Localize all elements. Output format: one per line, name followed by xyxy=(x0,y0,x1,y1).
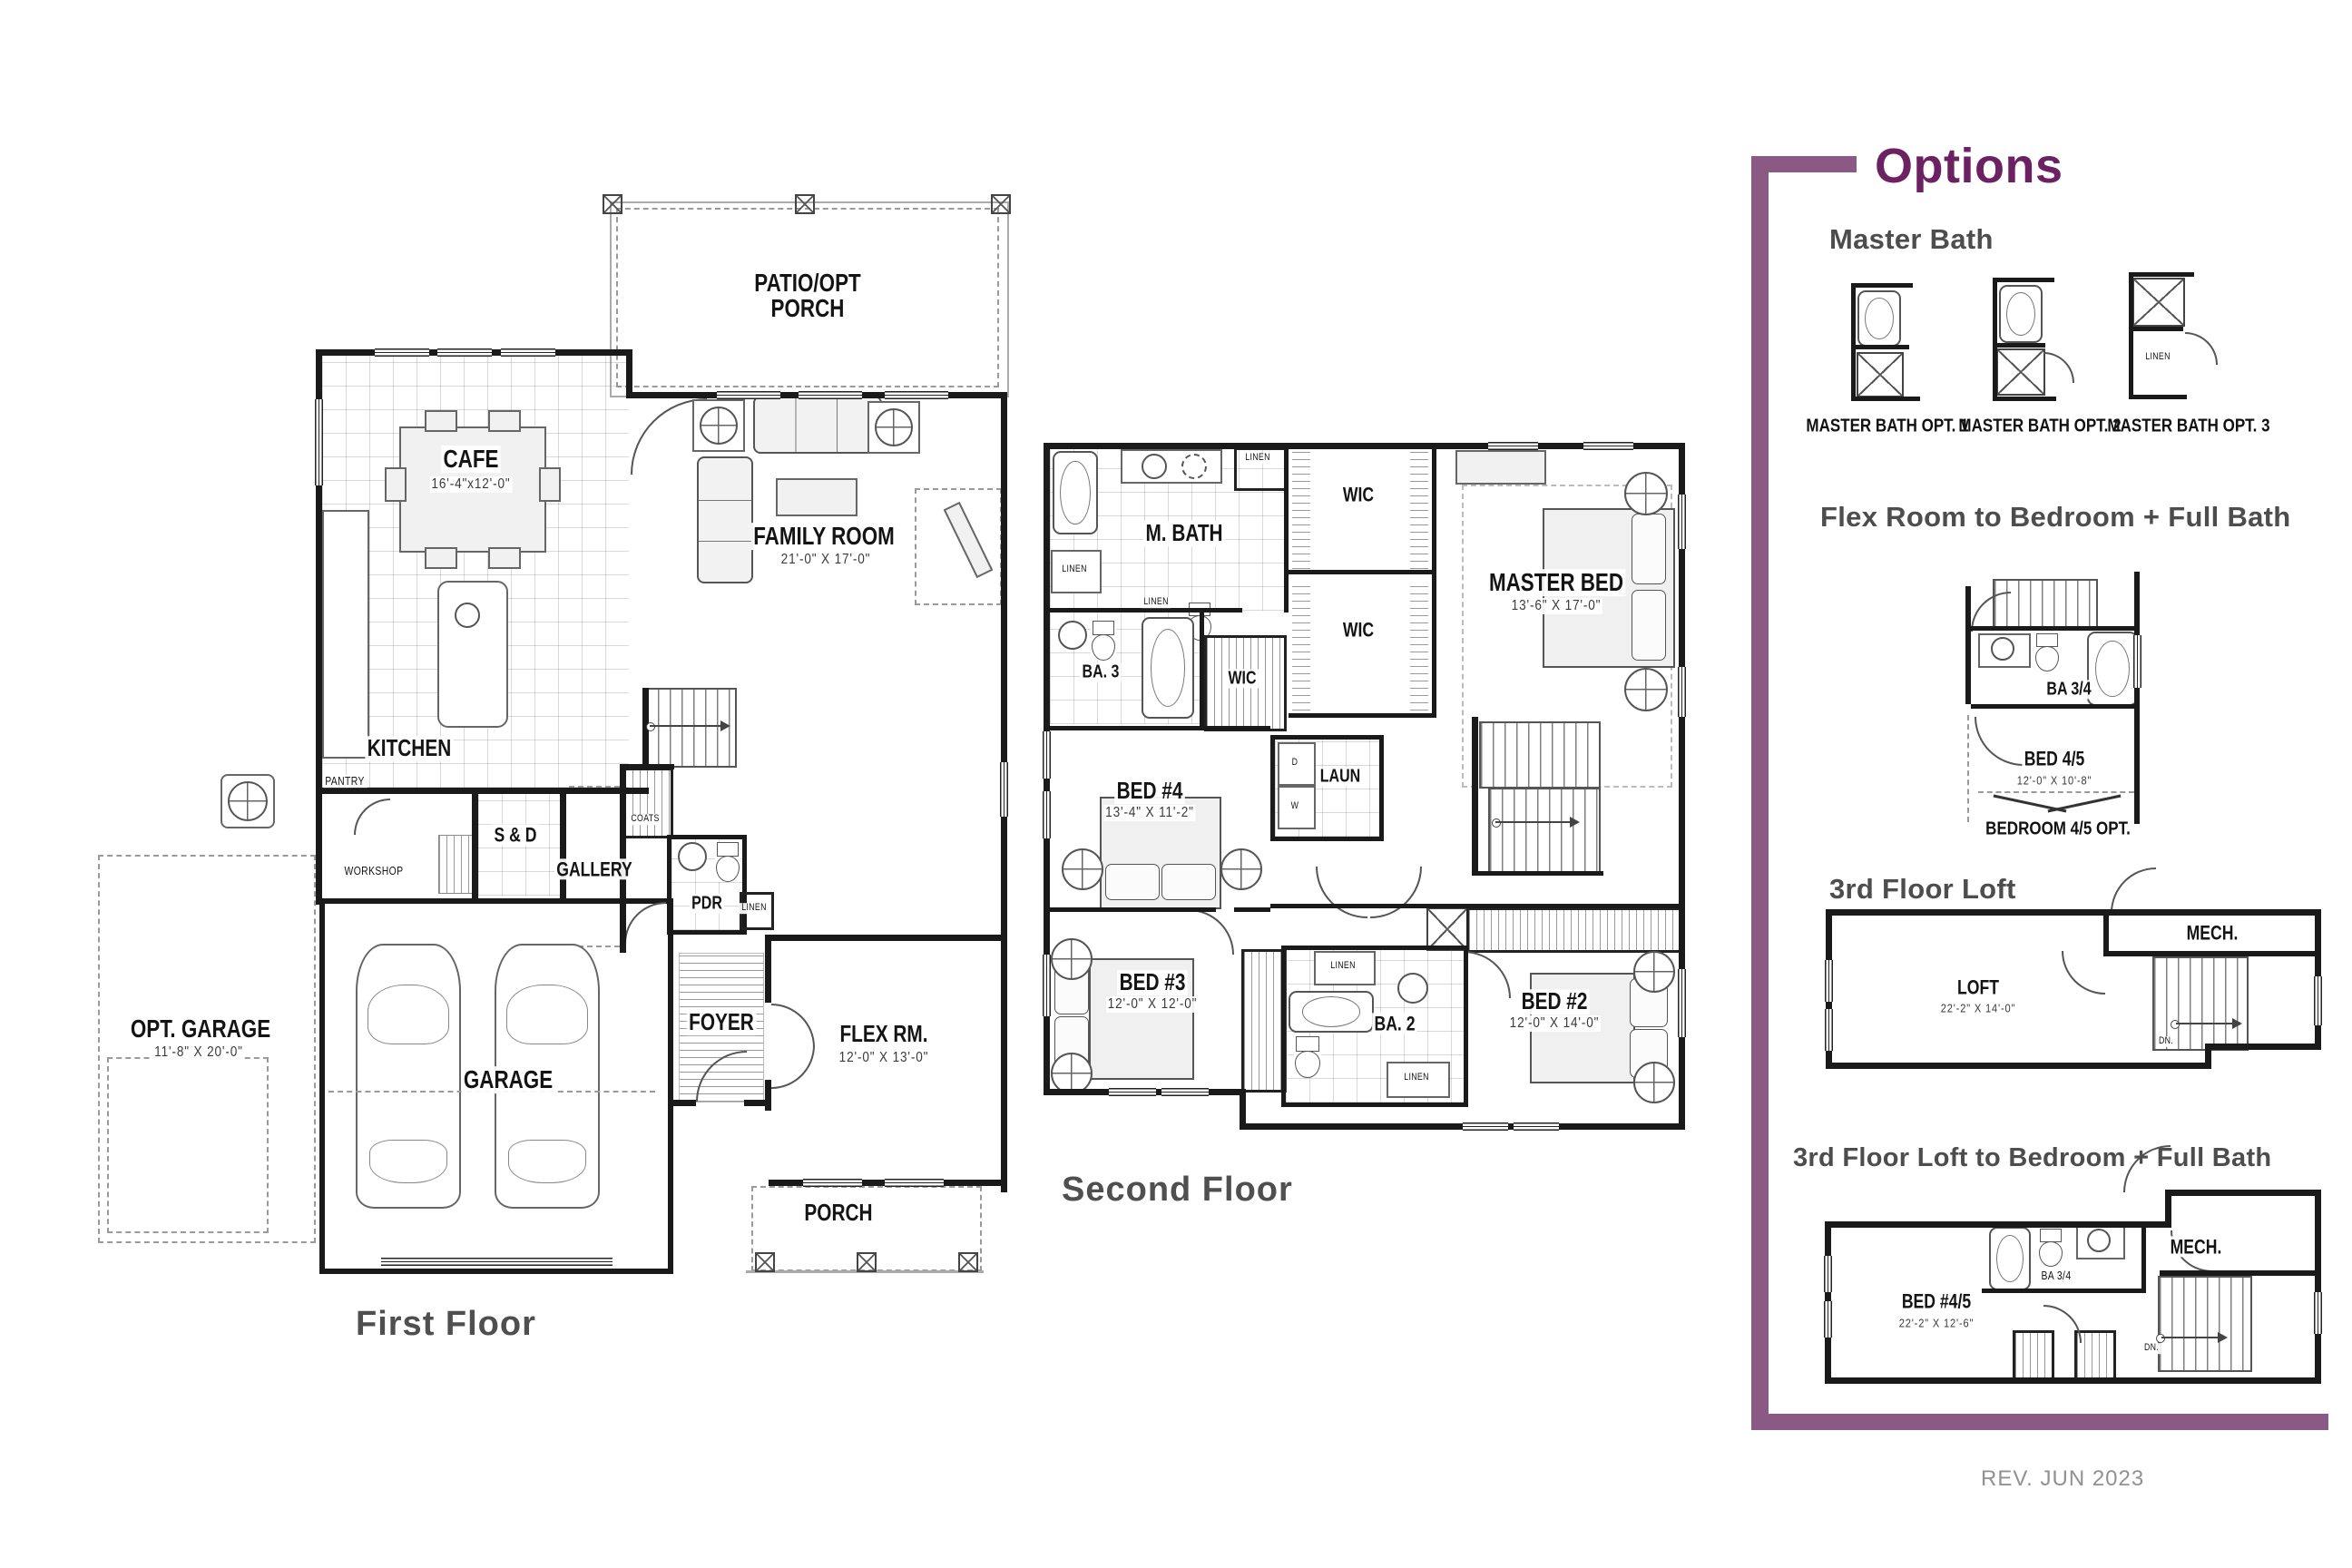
stair-arrow-dot xyxy=(2171,1020,2180,1029)
window xyxy=(1488,442,1538,450)
wall xyxy=(1044,907,1216,912)
flex-option-caption: BEDROOM 4/5 OPT. xyxy=(1985,819,2131,840)
window xyxy=(2314,976,2322,1025)
wall xyxy=(316,788,649,794)
dn-label: DN. xyxy=(2157,1036,2176,1047)
second-floor-title: Second Floor xyxy=(1062,1171,1293,1210)
wall xyxy=(769,935,1007,941)
wic-label: WIC xyxy=(1340,484,1376,505)
window xyxy=(501,348,555,357)
wall xyxy=(2103,909,2109,951)
wall xyxy=(1472,717,1478,876)
cafe-dims: 16'-4"x12'-0" xyxy=(430,476,513,493)
wall xyxy=(1993,343,2045,348)
wall xyxy=(1234,907,1270,912)
wall xyxy=(1993,278,1997,401)
first-floor-title: First Floor xyxy=(356,1305,536,1344)
stair-arrow xyxy=(650,725,722,727)
linen-label: LINEN xyxy=(1328,961,1357,972)
wall xyxy=(1993,397,2056,401)
opt-garage-dims: 11'-8" X 20'-0" xyxy=(152,1044,244,1061)
flex-option-heading: Flex Room to Bedroom + Full Bath xyxy=(1820,501,2291,534)
master-bath-opt1-caption: MASTER BATH OPT. 1 xyxy=(1806,416,1968,437)
master-bed-dims: 13'-6" X 17'-0" xyxy=(1510,598,1602,614)
window xyxy=(1678,667,1686,717)
window xyxy=(2314,1292,2322,1334)
wall xyxy=(1825,1221,2170,1228)
dryer-label: D xyxy=(1289,758,1299,769)
window xyxy=(799,391,862,399)
wall xyxy=(1971,626,2140,631)
bed2-dims: 12'-0" X 14'-0" xyxy=(1508,1015,1601,1032)
wall xyxy=(2165,1190,2321,1196)
bed4-dims: 13'-4" X 11'-2" xyxy=(1103,805,1195,821)
foyer-label: FOYER xyxy=(687,1010,756,1035)
pdr-label: PDR xyxy=(690,894,725,913)
loft-label: LOFT xyxy=(1955,976,2002,997)
master-bath-opt3-caption: MASTER BATH OPT. 3 xyxy=(2107,416,2269,437)
wall xyxy=(1851,283,1913,288)
wall xyxy=(626,349,632,398)
bay-window xyxy=(2048,795,2122,813)
bed4-label: BED #4 xyxy=(1114,779,1185,804)
stair-arrow-head xyxy=(2218,1332,2228,1343)
stair-arrow-dot xyxy=(1492,818,1501,828)
wall xyxy=(1200,608,1204,730)
flex-room-label: FLEX RM. xyxy=(838,1022,930,1047)
accent-bar-bottom xyxy=(1751,1414,2328,1430)
wall xyxy=(1825,1377,2321,1384)
window xyxy=(1825,960,1833,1002)
wall xyxy=(1284,447,1289,612)
window xyxy=(375,348,429,357)
linen-label: LINEN xyxy=(1243,453,1272,464)
wall xyxy=(1289,713,1436,718)
window xyxy=(1043,955,1051,1016)
family-room-label: FAMILY ROOM xyxy=(751,523,897,550)
kitchen-label: KITCHEN xyxy=(365,736,453,761)
coats-label: COATS xyxy=(629,814,661,825)
window xyxy=(1824,1301,1832,1338)
mech-label: MECH. xyxy=(2184,922,2240,943)
ba2-label: BA. 2 xyxy=(1372,1013,1417,1034)
stair-arrow xyxy=(2176,1023,2234,1024)
window xyxy=(1825,1009,1833,1051)
patio-label-line2: PORCH xyxy=(769,295,847,322)
master-bath-opt2-caption: MASTER BATH OPT. 2 xyxy=(1958,416,2121,437)
bed45-dims: 12'-0" X 10'-8" xyxy=(2015,774,2093,788)
wall xyxy=(1982,1289,2145,1293)
options-title: Options xyxy=(1875,138,2063,194)
stair-arrow-head xyxy=(2232,1018,2242,1029)
cafe-label: CAFE xyxy=(441,446,501,473)
laundry-label: LAUN xyxy=(1318,767,1362,786)
wall xyxy=(669,1100,696,1106)
wall xyxy=(2205,1044,2321,1050)
window xyxy=(1583,442,1633,450)
linen-label: LINEN xyxy=(740,903,769,914)
ba34-label: BA 3/4 xyxy=(2039,1269,2073,1282)
ba3-label: BA. 3 xyxy=(1080,662,1122,681)
garage-label: GARAGE xyxy=(461,1066,554,1093)
window xyxy=(803,1179,862,1187)
window xyxy=(1678,969,1686,1037)
stair-arrow-dot xyxy=(646,722,655,731)
wall xyxy=(2315,1190,2321,1384)
window xyxy=(1678,495,1686,549)
sink xyxy=(2087,1229,2111,1252)
stair-arrow-head xyxy=(720,720,730,731)
tub xyxy=(2087,632,2138,706)
wic-label: WIC xyxy=(1340,619,1376,640)
stair-arrow-head xyxy=(1570,817,1580,828)
wall xyxy=(2129,272,2133,399)
tub xyxy=(1989,1227,2031,1290)
wall xyxy=(1289,570,1436,574)
wall xyxy=(2141,1221,2146,1293)
wall xyxy=(472,788,478,898)
loft-dims: 22'-2" X 14'-0" xyxy=(1939,1002,2017,1015)
wall xyxy=(2129,395,2187,399)
door-arc xyxy=(2062,951,2105,995)
door-arc xyxy=(1975,717,2024,766)
toilet xyxy=(2034,633,2060,671)
wall xyxy=(1851,345,1909,349)
window xyxy=(1463,1122,1508,1131)
wic-label: WIC xyxy=(1226,669,1259,688)
wall xyxy=(1050,726,1270,730)
wall xyxy=(2129,272,2194,277)
shower xyxy=(2132,278,2185,327)
sd-label: S & D xyxy=(492,824,539,845)
wall xyxy=(2134,572,2140,824)
master-bath-heading: Master Bath xyxy=(1829,223,1994,256)
door-arc xyxy=(2043,1305,2082,1343)
bed3-label: BED #3 xyxy=(1117,970,1188,995)
wall xyxy=(2129,327,2183,331)
loft-bed-label: BED #4/5 xyxy=(1899,1290,1973,1311)
garage-door xyxy=(381,1258,612,1266)
flex-room-dims: 12'-0" X 13'-0" xyxy=(838,1050,930,1066)
window xyxy=(1000,762,1008,817)
stair-arrow xyxy=(2161,1337,2220,1338)
loft-heading: 3rd Floor Loft xyxy=(1829,873,2016,906)
window xyxy=(1514,1122,1559,1131)
shower xyxy=(1996,348,2045,396)
pantry-label: PANTRY xyxy=(323,775,367,788)
bed45-label: BED 4/5 xyxy=(2022,748,2086,769)
wall xyxy=(1993,278,2054,282)
tub xyxy=(1857,290,1901,347)
door-arc xyxy=(2043,352,2074,383)
window xyxy=(1161,1088,1209,1096)
stairs xyxy=(2158,1276,2252,1372)
wall xyxy=(1971,704,2140,709)
window xyxy=(1043,791,1051,838)
wall xyxy=(1270,904,1685,908)
dn-label: DN. xyxy=(2142,1343,2161,1354)
door-arc xyxy=(2185,332,2218,365)
wall xyxy=(1965,586,1971,704)
wall xyxy=(1826,1063,2211,1069)
workshop-label: WORKSHOP xyxy=(342,865,406,877)
wall xyxy=(2160,1270,2321,1276)
bed3-dims: 12'-0" X 12'-0" xyxy=(1106,996,1199,1013)
wall xyxy=(1050,608,1242,612)
window xyxy=(2133,635,2141,688)
wall xyxy=(1432,447,1436,718)
linen-label: LINEN xyxy=(2143,352,2172,363)
wall xyxy=(560,788,566,898)
window xyxy=(1824,1256,1832,1292)
wall xyxy=(744,1100,771,1106)
wall xyxy=(620,764,674,769)
tub xyxy=(1999,285,2043,343)
wall xyxy=(765,935,771,1003)
bed2-label: BED #2 xyxy=(1519,989,1590,1014)
shower xyxy=(1857,352,1904,397)
master-bed-label: MASTER BED xyxy=(1487,569,1626,596)
window xyxy=(1109,1088,1156,1096)
stair-arrow xyxy=(1495,821,1570,823)
bay-sill xyxy=(1978,791,2134,793)
window xyxy=(1043,731,1051,779)
window xyxy=(315,399,323,485)
linen-label: LINEN xyxy=(1402,1073,1431,1083)
accent-bar-left xyxy=(1751,156,1769,1430)
revision-note: REV. JUN 2023 xyxy=(1981,1466,2144,1492)
toilet xyxy=(2038,1229,2063,1267)
door-arc xyxy=(2111,867,2156,913)
wall xyxy=(1826,909,2321,916)
wall xyxy=(1851,397,1920,401)
loft-bed-heading: 3rd Floor Loft to Bedroom + Full Bath xyxy=(1793,1143,2271,1173)
wall-dashed xyxy=(1967,715,1969,822)
window xyxy=(885,1179,944,1187)
porch-label: PORCH xyxy=(802,1200,875,1226)
sink xyxy=(1991,637,2014,661)
loft-bed-dims: 22'-2" X 12'-6" xyxy=(1897,1317,1975,1330)
family-room-dims: 21'-0" X 17'-0" xyxy=(779,552,872,568)
wall xyxy=(2103,951,2321,956)
gallery-label: GALLERY xyxy=(554,858,634,879)
patio-label-line1: PATIO/OPT xyxy=(752,269,863,297)
window xyxy=(717,391,780,399)
opt-garage-label: OPT. GARAGE xyxy=(128,1015,272,1043)
wall xyxy=(1472,871,1603,876)
window xyxy=(437,348,492,357)
wall xyxy=(1851,283,1856,401)
washer-label: W xyxy=(1289,801,1300,812)
ba34-label: BA 3/4 xyxy=(2044,680,2093,699)
window xyxy=(885,391,948,399)
floorplan-sheet: PATIO/OPT PORCH xyxy=(0,0,2352,1568)
linen-label: LINEN xyxy=(1060,564,1089,575)
mech-label: MECH. xyxy=(2168,1236,2224,1257)
mbath-label: M. BATH xyxy=(1143,521,1225,546)
linen-label: LINEN xyxy=(1142,597,1171,608)
